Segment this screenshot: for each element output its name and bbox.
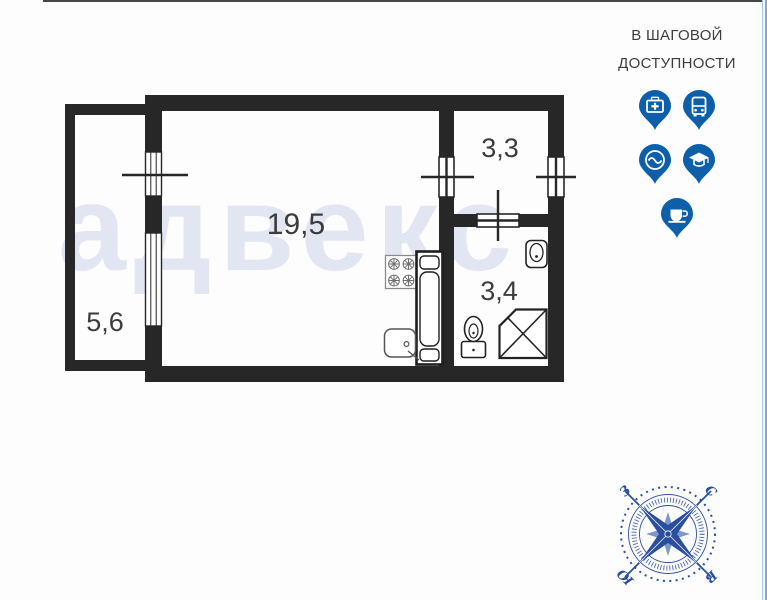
nearby-title: В ШАГОВОЙ ДОСТУПНОСТИ xyxy=(597,22,757,78)
bus-pin-icon xyxy=(681,89,717,131)
door-bathroom xyxy=(468,190,528,241)
cafe-pin-icon xyxy=(659,197,695,239)
medical-pin-icon xyxy=(637,89,673,131)
kitchen-sink-symbol xyxy=(385,329,420,360)
room-label-living: 19,5 xyxy=(267,208,325,241)
education-pin-icon xyxy=(681,143,717,185)
stove-symbol xyxy=(386,256,417,289)
room-label-balcony: 5,6 xyxy=(86,307,124,337)
bathroom-sink-symbol xyxy=(526,241,547,268)
door-entrance xyxy=(536,151,576,203)
toilet-symbol xyxy=(462,317,486,358)
page: адвекс xyxy=(0,0,767,600)
compass-rose: З С Ю В xyxy=(610,476,726,597)
room-label-hallway: 3,3 xyxy=(481,133,519,163)
nearby-panel: В ШАГОВОЙ ДОСТУПНОСТИ xyxy=(597,22,757,239)
room-label-bathroom: 3,4 xyxy=(480,276,518,306)
wave-circle-pin-icon xyxy=(637,143,673,185)
cabinet-symbol xyxy=(417,252,443,365)
shower-symbol xyxy=(500,310,547,359)
balcony-window xyxy=(122,152,188,326)
door-hallway xyxy=(421,151,474,203)
